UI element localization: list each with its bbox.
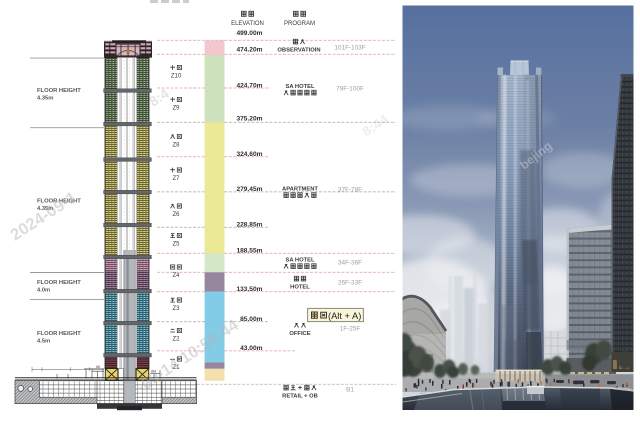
svg-text:324.60m: 324.60m — [236, 151, 262, 158]
svg-text:HOTEL: HOTEL — [290, 284, 310, 290]
svg-text:OBSERVATIOIN: OBSERVATIOIN — [277, 47, 320, 53]
svg-text:RETAIL + OB: RETAIL + OB — [282, 393, 318, 399]
svg-text:FLOOR HEIGHT: FLOOR HEIGHT — [37, 88, 81, 94]
svg-text:26F-33F: 26F-33F — [338, 280, 362, 287]
svg-text:SA HOTEL: SA HOTEL — [285, 84, 315, 90]
svg-text:37F-78F: 37F-78F — [338, 187, 362, 194]
svg-text:4.5m: 4.5m — [37, 338, 50, 344]
svg-text:133.50m: 133.50m — [236, 286, 262, 293]
svg-text:188.55m: 188.55m — [236, 247, 262, 254]
svg-text:101F-103F: 101F-103F — [334, 45, 365, 52]
svg-text:ELEVATION: ELEVATION — [231, 21, 264, 27]
svg-text:FLOOR HEIGHT: FLOOR HEIGHT — [37, 280, 81, 286]
svg-text:OFFICE: OFFICE — [289, 331, 310, 337]
svg-text:Z7: Z7 — [172, 176, 180, 182]
svg-text:85.00m: 85.00m — [240, 316, 263, 323]
svg-text:(Alt + A): (Alt + A) — [328, 311, 361, 321]
svg-text:279.45m: 279.45m — [236, 186, 262, 193]
svg-text:Z4: Z4 — [172, 273, 180, 279]
svg-text:43.00m: 43.00m — [240, 345, 263, 352]
svg-text:2024-09-1: 2024-09-1 — [7, 188, 80, 244]
svg-text:APARTMENT: APARTMENT — [282, 187, 318, 193]
svg-text:499.00m: 499.00m — [236, 30, 262, 37]
svg-text:B1: B1 — [346, 387, 354, 394]
svg-text:34F-36F: 34F-36F — [338, 260, 362, 267]
svg-text:Z2: Z2 — [172, 336, 180, 342]
svg-text:228.85m: 228.85m — [236, 221, 262, 228]
svg-text:79F-100F: 79F-100F — [336, 86, 364, 93]
svg-text:1F-25F: 1F-25F — [340, 326, 361, 333]
svg-text:4.35m: 4.35m — [37, 95, 53, 101]
svg-text:424.70m: 424.70m — [236, 82, 262, 89]
svg-text:Z10: Z10 — [171, 73, 182, 79]
svg-text:Z9: Z9 — [172, 105, 180, 111]
svg-text:375.20m: 375.20m — [236, 115, 262, 122]
svg-text:8:44: 8:44 — [359, 111, 391, 140]
svg-text:474.20m: 474.20m — [236, 47, 262, 54]
svg-text:FLOOR HEIGHT: FLOOR HEIGHT — [37, 331, 81, 337]
svg-text:86: 86 — [96, 365, 100, 369]
svg-text:SA HOTEL: SA HOTEL — [285, 258, 315, 264]
svg-text:Z6: Z6 — [172, 212, 180, 218]
svg-text:Z3: Z3 — [172, 306, 180, 312]
svg-text:4.0m: 4.0m — [37, 287, 50, 293]
svg-text:Z8: Z8 — [172, 142, 180, 148]
svg-text:Z5: Z5 — [172, 241, 180, 247]
svg-text:PROGRAM: PROGRAM — [284, 21, 315, 27]
